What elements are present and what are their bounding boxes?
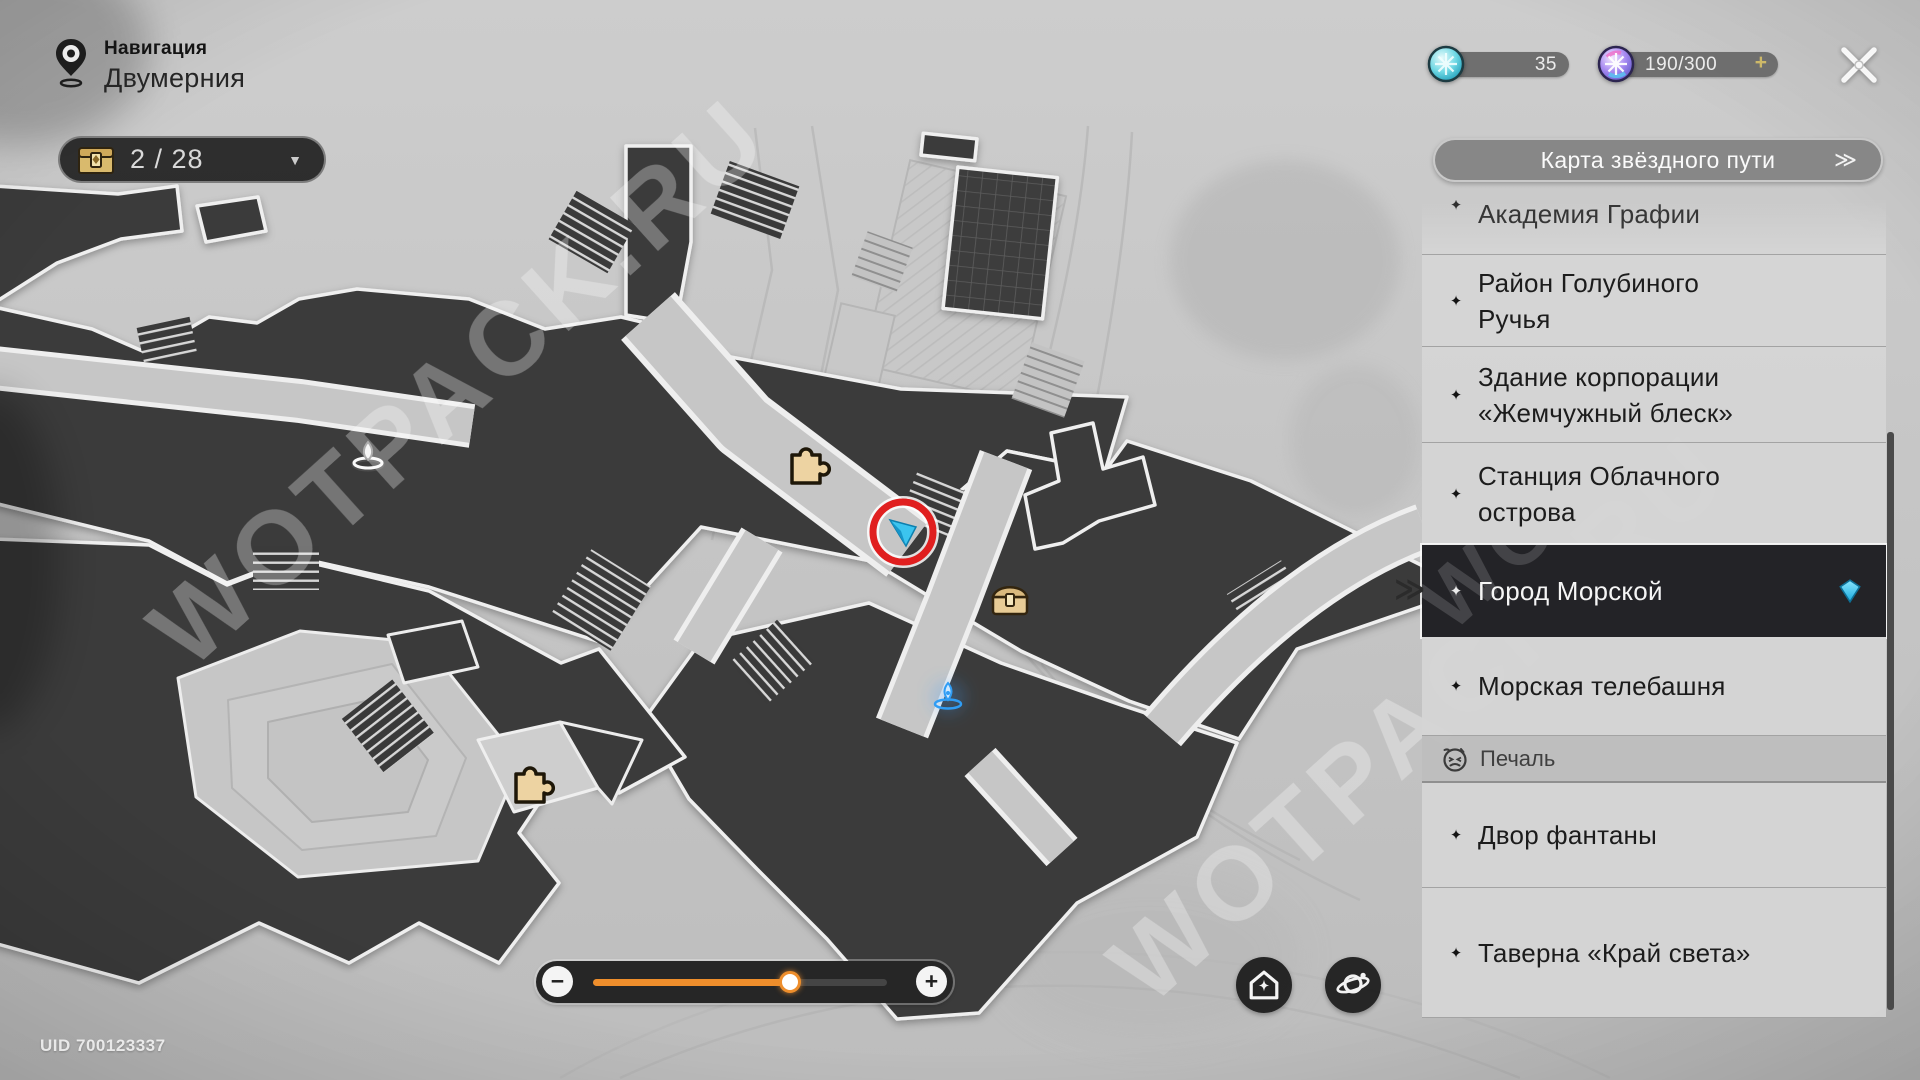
nav-label: Навигация [104, 38, 245, 60]
star-bullet-icon: ✦ [1446, 386, 1466, 404]
location-name: Двумерния [104, 63, 245, 94]
player-location-icon [1836, 577, 1864, 605]
location-section-header[interactable]: Печаль [1422, 736, 1886, 783]
location-item[interactable]: ✦Таверна «Край света» [1422, 888, 1886, 1018]
star-rail-map-button-label: Карта звёздного пути [1541, 147, 1776, 174]
location-item[interactable]: ✦Двор фантаны [1422, 783, 1886, 888]
star-bullet-icon: ✦ [1446, 582, 1466, 600]
home-marker-button[interactable] [1236, 957, 1292, 1013]
location-item[interactable]: ✦Морская телебашня [1422, 637, 1886, 736]
section-label: Печаль [1480, 746, 1555, 772]
location-item-label: Таверна «Край света» [1478, 935, 1751, 971]
star-bullet-icon: ✦ [1446, 485, 1466, 503]
planet-view-button[interactable] [1325, 957, 1381, 1013]
location-item[interactable]: ✦Здание корпорации«Жемчужный блеск» [1422, 347, 1886, 443]
zoom-slider[interactable]: − + [536, 961, 953, 1003]
chevron-down-icon: ▼ [288, 152, 302, 168]
location-item-label: Академия Графии [1478, 200, 1700, 232]
zoom-out-button[interactable]: − [542, 966, 573, 997]
zoom-slider-knob[interactable] [779, 971, 801, 993]
chest-icon [76, 144, 116, 176]
trailblaze-power-value: 190/300 [1645, 54, 1717, 76]
star-bullet-icon: ✦ [1446, 826, 1466, 844]
currency-fuel[interactable]: 35 [1427, 45, 1569, 83]
location-item[interactable]: ✦Станция Облачногоострова [1422, 443, 1886, 545]
location-item-label: Здание корпорации«Жемчужный блеск» [1478, 359, 1733, 431]
location-list: ✦Академия Графии✦Район ГолубиногоРучья✦З… [1422, 200, 1886, 1018]
uid-label: UID 700123337 [40, 1036, 166, 1056]
fuel-value: 35 [1535, 54, 1557, 76]
star-bullet-icon: ✦ [1446, 944, 1466, 962]
add-currency-button[interactable]: + [1755, 51, 1767, 75]
home-icon [1248, 969, 1280, 1001]
location-item-label: Двор фантаны [1478, 817, 1657, 853]
saturn-icon [1336, 968, 1370, 1002]
zoom-slider-track[interactable] [593, 979, 887, 986]
game-map-screen: WOTPACK.RU WOTPACK.RU Навигация Двумерни… [0, 0, 1920, 1080]
fuel-orb-icon [1427, 45, 1465, 83]
location-item-label: Станция Облачногоострова [1478, 458, 1720, 530]
star-bullet-icon: ✦ [1446, 677, 1466, 695]
location-item[interactable]: ✦Район ГолубиногоРучья [1422, 255, 1886, 347]
close-button[interactable] [1834, 40, 1884, 90]
currency-trailblaze-power[interactable]: 190/300 + [1597, 45, 1778, 83]
nav-header: Навигация Двумерния [54, 38, 245, 94]
location-item-selected[interactable]: ✦Город МорскойWOTPACK.RU [1422, 545, 1886, 637]
zoom-slider-fill [593, 979, 790, 986]
location-pin-icon [54, 38, 88, 88]
chest-counter-dropdown[interactable]: 2 / 28 ▼ [58, 136, 326, 183]
sad-face-icon [1440, 744, 1470, 774]
location-item-label: Район ГолубиногоРучья [1478, 265, 1699, 337]
star-bullet-icon: ✦ [1446, 200, 1466, 214]
location-item[interactable]: ✦Академия Графии [1422, 200, 1886, 255]
trailblaze-power-orb-icon [1597, 45, 1635, 83]
chest-counter-value: 2 / 28 [130, 144, 204, 175]
selected-item-indicator-icon: ≫ [1394, 572, 1425, 607]
location-item-label: Город Морской [1478, 573, 1663, 609]
star-rail-map-button[interactable]: Карта звёздного пути ≫ [1433, 138, 1883, 182]
zoom-in-button[interactable]: + [916, 966, 947, 997]
star-bullet-icon: ✦ [1446, 292, 1466, 310]
scrollbar-thumb[interactable] [1887, 432, 1894, 1010]
chevron-right-icon: ≫ [1834, 147, 1857, 173]
location-item-label: Морская телебашня [1478, 668, 1726, 704]
